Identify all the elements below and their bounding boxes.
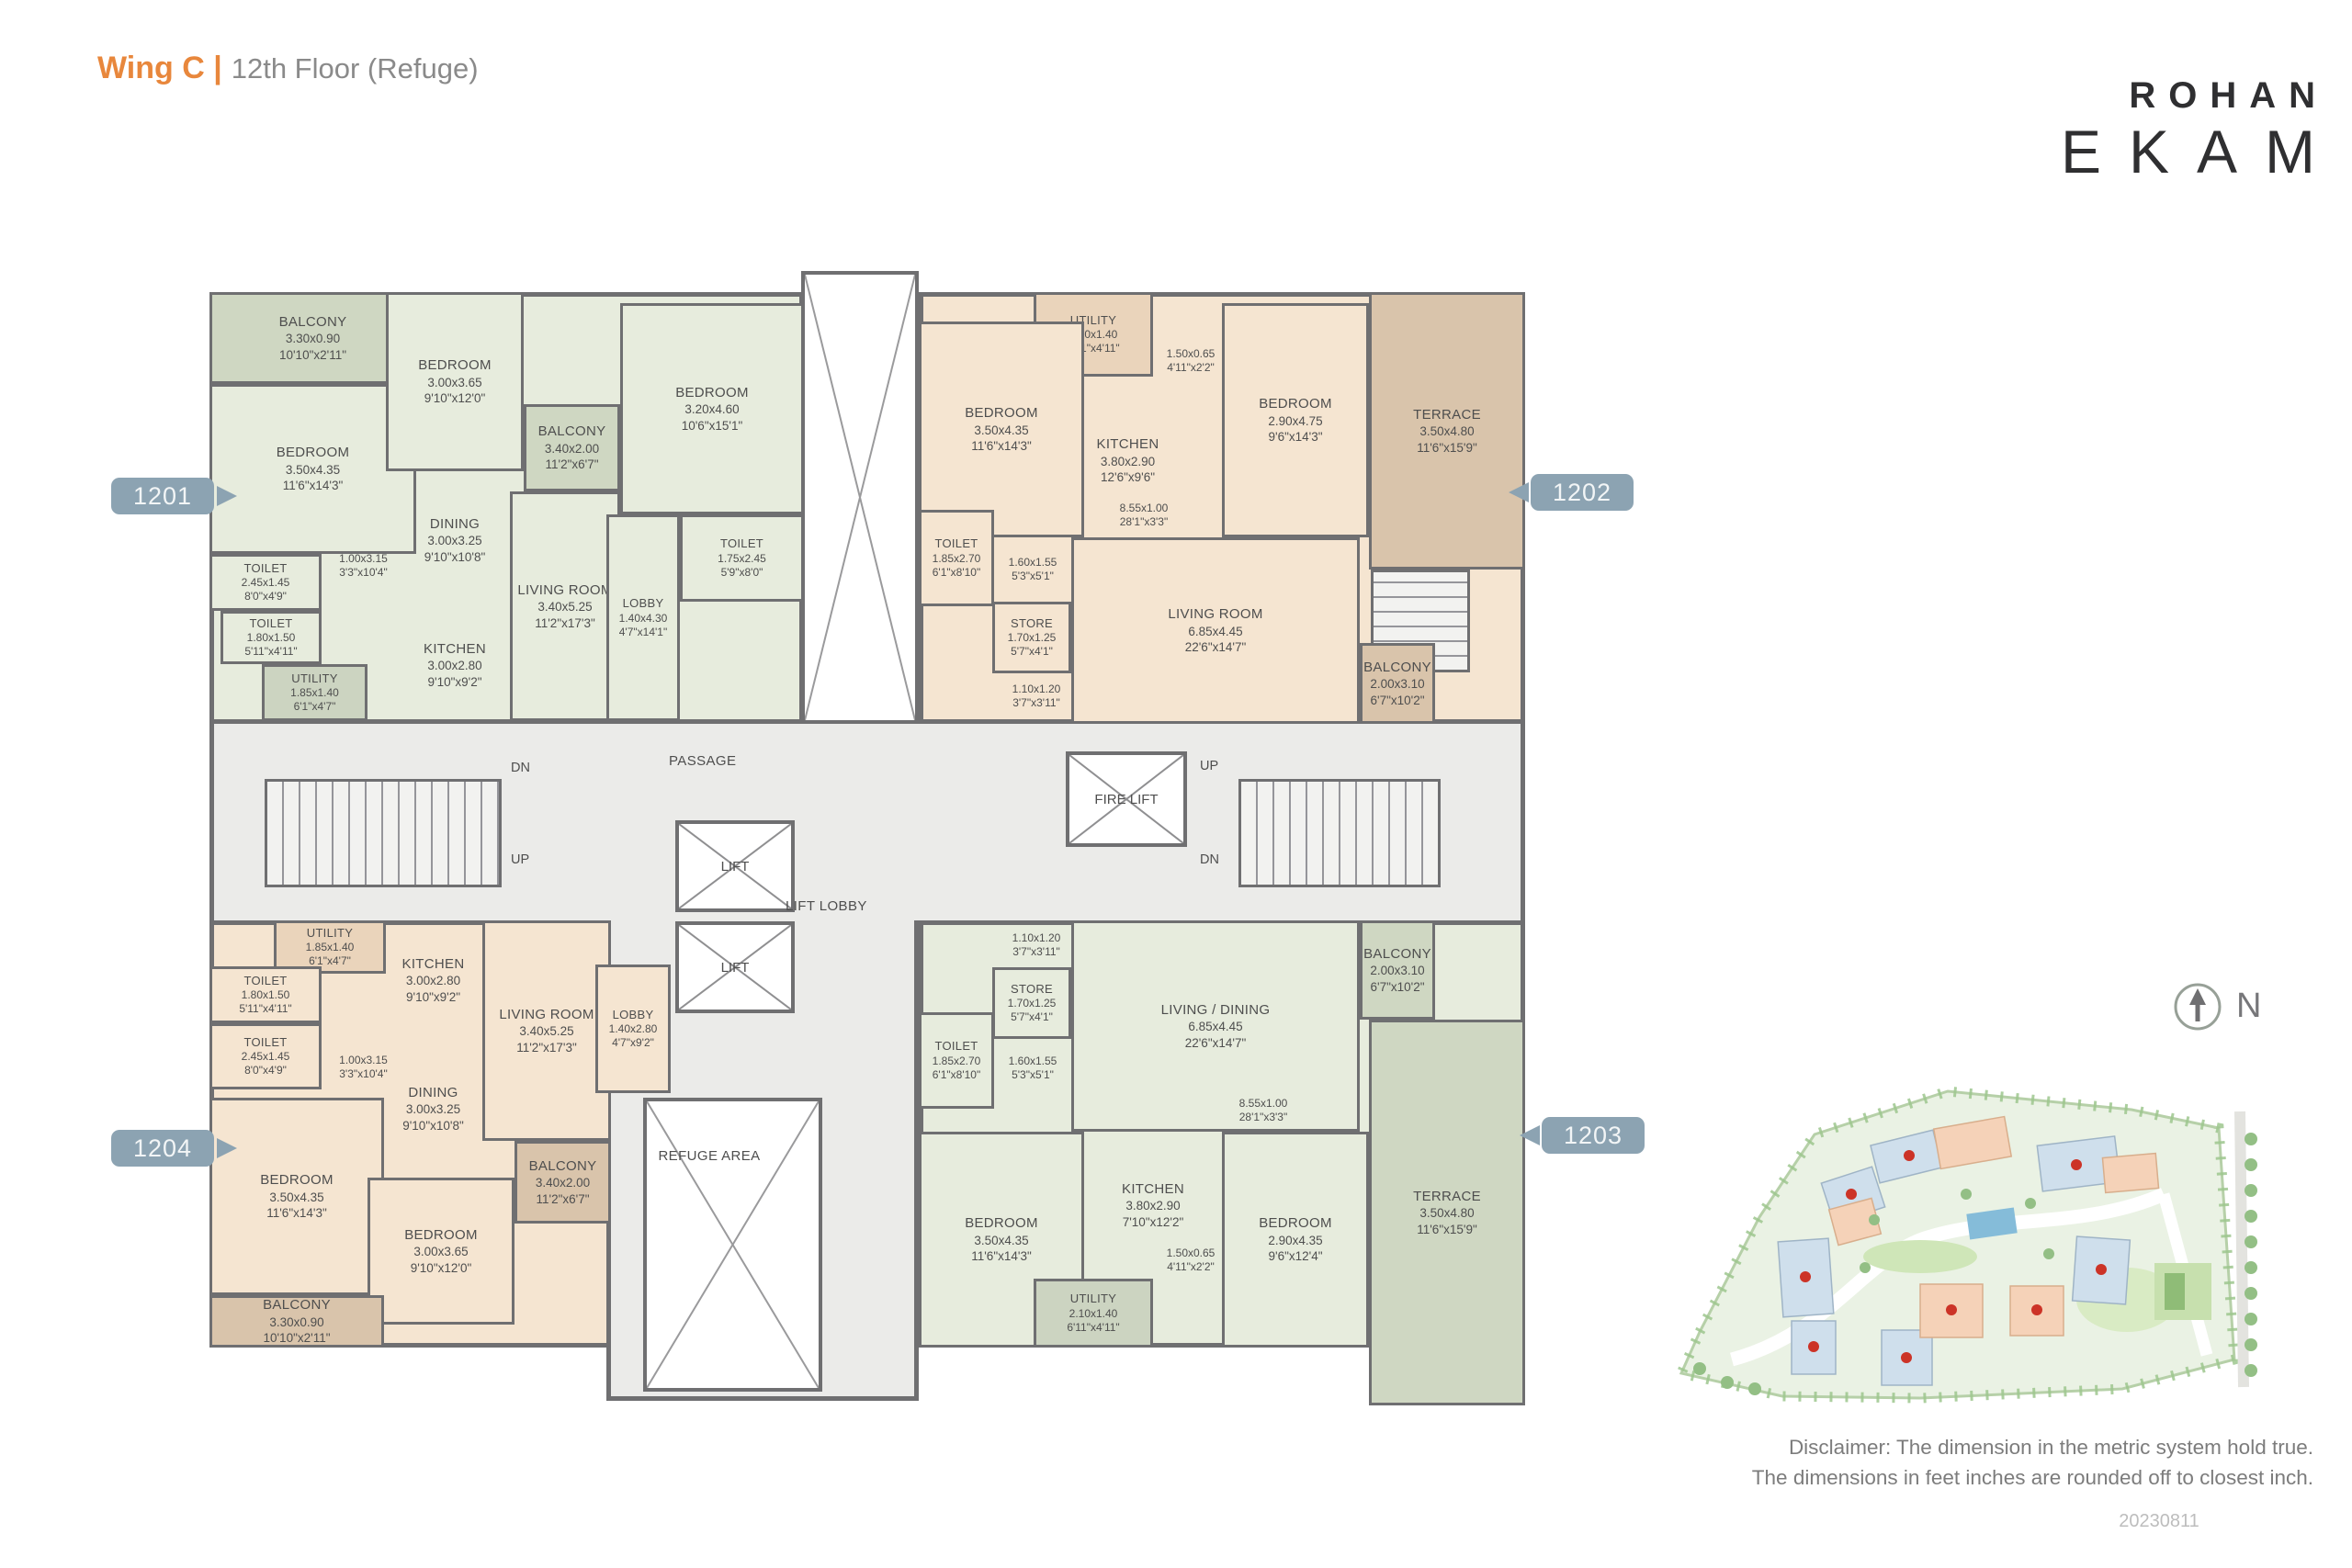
date-code: 20230811 (2095, 1511, 2223, 1532)
room-metric: 3.80x2.90 (1101, 454, 1155, 470)
unit-badge-1203: 1203 (1542, 1117, 1645, 1154)
room-imperial: 5'9"x8'0" (721, 566, 763, 580)
room-metric: 2.90x4.35 (1268, 1233, 1322, 1249)
room-name: UTILITY (291, 671, 338, 687)
room-name: LIVING ROOM (499, 1006, 594, 1024)
dn-label-left: DN (511, 761, 530, 775)
room-toilet: TOILET1.85x2.706'1"x8'10" (919, 1012, 994, 1109)
site-map-illustration (1645, 1056, 2269, 1419)
room-imperial: 22'6"x14'7" (1185, 639, 1247, 656)
room-imperial: 10'6"x15'1" (682, 418, 743, 434)
room-name: TOILET (934, 1039, 978, 1055)
refuge-area-label: REFUGE AREA (654, 1146, 764, 1168)
room-imperial: 11'2"x6'7" (536, 1191, 589, 1208)
room-metric: 1.60x1.55 (1009, 556, 1057, 570)
room-dining: DINING3.00x3.259'10"x10'8" (386, 471, 524, 609)
room-metric: 3.50x4.80 (1419, 1205, 1474, 1222)
room-imperial: 8'0"x4'9" (244, 590, 287, 604)
room-imperial: 3'7"x3'11" (1012, 696, 1060, 710)
room-metric: 1.50x0.65 (1167, 347, 1216, 361)
fire-lift-label: FIRE LIFT (1069, 755, 1183, 843)
room-imperial: 4'7"x9'2" (612, 1036, 654, 1050)
room-niche: 1.60x1.555'3"x5'1" (996, 547, 1069, 592)
fire-lift-shaft: FIRE LIFT (1066, 751, 1187, 847)
room-balcony: BALCONY3.40x2.0011'2"x6'7" (514, 1141, 611, 1224)
room-name: BALCONY (279, 313, 347, 332)
room-metric: 1.85x1.40 (290, 686, 339, 700)
room-imperial: 11'6"x14'3" (283, 478, 344, 494)
room-toilet: TOILET1.75x2.455'9"x8'0" (680, 514, 804, 602)
room-imperial: 11'6"x14'3" (971, 438, 1032, 455)
room-metric: 2.00x3.10 (1370, 963, 1424, 979)
room-name: LIVING ROOM (517, 581, 612, 600)
room-metric: 1.70x1.25 (1008, 631, 1057, 645)
room-terrace: TERRACE3.50x4.8011'6"x15'9" (1369, 1020, 1525, 1405)
room-name: STORE (1011, 982, 1053, 998)
room-name: KITCHEN (424, 640, 486, 659)
room-metric: 1.70x1.25 (1008, 997, 1057, 1010)
room-metric: 3.30x0.90 (269, 1314, 323, 1331)
unit-badge-1201: 1201 (111, 478, 214, 514)
room-bedroom: BEDROOM2.90x4.759'6"x14'3" (1222, 303, 1369, 537)
room-name: BEDROOM (260, 1171, 334, 1190)
room-imperial: 6'7"x10'2" (1370, 693, 1424, 709)
room-imperial: 11'2"x17'3" (516, 1040, 577, 1056)
room-imperial: 4'7"x14'1" (619, 626, 667, 639)
room-metric: 1.80x1.50 (242, 988, 290, 1002)
room-imperial: 28'1"x3'3" (1239, 1111, 1287, 1124)
room-metric: 1.85x2.70 (933, 1055, 981, 1068)
dn-label-right: DN (1200, 852, 1219, 867)
room-metric: 1.50x0.65 (1167, 1247, 1216, 1260)
room-imperial: 5'7"x4'1" (1011, 1010, 1053, 1024)
room-imperial: 3'7"x3'11" (1012, 945, 1060, 959)
room-metric: 3.50x4.35 (286, 462, 340, 479)
lift-label: LIFT (679, 925, 791, 1010)
room-bedroom: BEDROOM3.00x3.659'10"x12'0" (386, 292, 524, 471)
room-toilet: TOILET2.45x1.458'0"x4'9" (209, 1023, 322, 1089)
room-name: BALCONY (529, 1157, 597, 1176)
page-title: Wing C |12th Floor (Refuge) (97, 51, 479, 86)
room-imperial: 5'11"x4'11" (239, 1002, 291, 1016)
room-imperial: 4'11"x2'2" (1167, 1260, 1215, 1274)
room-metric: 2.90x4.75 (1268, 413, 1322, 430)
room-living: LIVING ROOM3.40x5.2511'2"x17'3" (482, 920, 611, 1141)
north-label: N (2236, 987, 2261, 1026)
unit-arrow-1202 (1509, 482, 1529, 502)
lift-lobby-label: LIFT LOBBY (786, 898, 867, 914)
lift-label: LIFT (679, 824, 791, 908)
room-utility: UTILITY1.85x1.406'1"x4'7" (262, 664, 367, 721)
room-dining: DINING3.00x3.259'10"x10'8" (384, 1040, 482, 1178)
room-terrace: TERRACE3.50x4.8011'6"x15'9" (1369, 292, 1525, 570)
room-imperial: 12'6"x9'6" (1101, 469, 1155, 486)
central-duct-bottom (643, 1098, 822, 1392)
room-store: STORE1.70x1.255'7"x4'1" (992, 967, 1071, 1039)
room-metric: 1.10x1.20 (1012, 682, 1061, 696)
room-metric: 6.85x4.45 (1188, 1019, 1242, 1035)
room-metric: 3.50x4.35 (974, 423, 1028, 439)
room-imperial: 5'3"x5'1" (1012, 1068, 1054, 1082)
room-living: LIVING ROOM6.85x4.4522'6"x14'7" (1071, 537, 1360, 724)
room-name: BALCONY (1363, 659, 1431, 677)
room-imperial: 3'3"x10'4" (339, 566, 387, 580)
room-metric: 3.50x4.35 (269, 1190, 323, 1206)
room-name: TOILET (243, 974, 287, 989)
room-name: TOILET (720, 536, 763, 552)
lift-shaft-1: LIFT (675, 820, 795, 912)
room-metric: 1.10x1.20 (1012, 931, 1061, 945)
wing-label: Wing C | (97, 51, 222, 85)
unit-arrow-1203 (1520, 1125, 1540, 1145)
room-metric: 3.50x4.35 (974, 1233, 1028, 1249)
room-niche: 1.60x1.555'3"x5'1" (996, 1045, 1069, 1091)
room-imperial: 11'6"x15'9" (1417, 440, 1477, 457)
room-metric: 1.80x1.50 (247, 631, 296, 645)
room-name: TERRACE (1413, 406, 1481, 424)
room-name: BEDROOM (1259, 395, 1332, 413)
room-name: UTILITY (307, 926, 354, 942)
room-lobby: LOBBY1.40x4.304'7"x14'1" (606, 514, 680, 721)
room-metric: 3.00x3.25 (406, 1101, 460, 1118)
room-toilet: TOILET2.45x1.458'0"x4'9" (209, 554, 322, 611)
room-name: LOBBY (613, 1008, 654, 1023)
unit-badge-1204: 1204 (111, 1130, 214, 1167)
room-metric: 3.80x2.90 (1125, 1198, 1180, 1214)
room-metric: 3.40x2.00 (545, 441, 599, 457)
room-imperial: 6'11"x4'11" (1067, 1321, 1119, 1335)
room-toilet: TOILET1.85x2.706'1"x8'10" (919, 510, 994, 606)
room-imperial: 10'10"x2'11" (263, 1330, 330, 1347)
room-name: TOILET (243, 1035, 287, 1051)
room-metric: 2.10x1.40 (1069, 1307, 1118, 1321)
room-imperial: 9'10"x9'2" (427, 674, 481, 691)
room-imperial: 11'2"x6'7" (545, 457, 598, 473)
room-balcony: BALCONY3.40x2.0011'2"x6'7" (524, 404, 620, 491)
room-imperial: 9'10"x12'0" (411, 1260, 472, 1277)
room-metric: 8.55x1.00 (1120, 502, 1169, 515)
room-toilet: TOILET1.80x1.505'11"x4'11" (209, 966, 322, 1023)
room-toilet: TOILET1.80x1.505'11"x4'11" (220, 611, 322, 664)
room-metric: 3.40x2.00 (536, 1175, 590, 1191)
unit-arrow-1201 (217, 486, 237, 506)
room-imperial: 5'3"x5'1" (1012, 570, 1054, 583)
room-bedroom: BEDROOM3.20x4.6010'6"x15'1" (620, 303, 804, 514)
room-name: KITCHEN (1097, 435, 1159, 454)
room-imperial: 11'2"x17'3" (535, 615, 595, 632)
room-metric: 1.85x2.70 (933, 552, 981, 566)
room-metric: 1.75x2.45 (718, 552, 766, 566)
room-name: BALCONY (538, 423, 606, 441)
room-balcony: BALCONY3.30x0.9010'10"x2'11" (209, 1295, 384, 1348)
disclaimer-line1: Disclaimer: The dimension in the metric … (1746, 1433, 2313, 1463)
room-imperial: 11'6"x14'3" (971, 1248, 1032, 1265)
room-niche: 1.50x0.654'11"x2'2" (1148, 1240, 1233, 1280)
lift-shaft-2: LIFT (675, 921, 795, 1013)
room-name: TERRACE (1413, 1188, 1481, 1206)
room-imperial: 22'6"x14'7" (1185, 1035, 1247, 1052)
disclaimer-line2: The dimensions in feet inches are rounde… (1746, 1463, 2313, 1494)
room-balcony: BALCONY2.00x3.106'7"x10'2" (1360, 920, 1435, 1020)
room-name: TOILET (934, 536, 978, 552)
room-name: DINING (430, 515, 480, 534)
room-imperial: 6'1"x4'7" (294, 700, 336, 714)
room-metric: 3.00x2.80 (406, 973, 460, 989)
room-metric: 2.00x3.10 (1370, 676, 1424, 693)
central-duct-top (801, 271, 919, 724)
up-label-right: UP (1200, 759, 1218, 773)
room-metric: 3.30x0.90 (286, 331, 340, 347)
room-imperial: 10'10"x2'11" (279, 347, 346, 364)
room-niche: 1.50x0.654'11"x2'2" (1148, 340, 1233, 382)
room-name: KITCHEN (1122, 1180, 1184, 1199)
room-imperial: 28'1"x3'3" (1120, 515, 1168, 529)
north-arrow-icon (2172, 981, 2227, 1036)
room-metric: 1.40x2.80 (609, 1022, 658, 1036)
room-name: LIVING / DINING (1161, 1001, 1271, 1020)
room-name: BEDROOM (965, 404, 1038, 423)
room-name: LIVING ROOM (1168, 605, 1262, 624)
room-name: BEDROOM (404, 1226, 478, 1245)
unit-arrow-1204 (217, 1138, 237, 1158)
room-living: LIVING ROOM3.40x5.2511'2"x17'3" (510, 491, 620, 721)
room-imperial: 7'10"x12'2" (1123, 1214, 1184, 1231)
room-imperial: 6'1"x8'10" (933, 1068, 980, 1082)
room-imperial: 3'3"x10'4" (339, 1067, 387, 1081)
room-name: TOILET (249, 616, 292, 632)
room-metric: 3.40x5.25 (537, 599, 592, 615)
room-name: BEDROOM (965, 1214, 1038, 1233)
room-balcony: BALCONY2.00x3.106'7"x10'2" (1360, 643, 1435, 724)
room-bedroom: BEDROOM3.50x4.3511'6"x14'3" (209, 1098, 384, 1295)
room-metric: 3.00x3.65 (427, 375, 481, 391)
room-imperial: 9'10"x12'0" (424, 390, 486, 407)
room-imperial: 9'10"x9'2" (406, 989, 460, 1006)
room-metric: 1.00x3.15 (339, 552, 388, 566)
room-imperial: 11'6"x15'9" (1417, 1222, 1477, 1238)
room-imperial: 9'6"x12'4" (1268, 1248, 1322, 1265)
room-imperial: 9'10"x10'8" (402, 1118, 464, 1134)
room-kitchen: KITCHEN3.00x2.809'10"x9'2" (384, 920, 482, 1040)
up-label-left: UP (511, 852, 529, 867)
floor-label: 12th Floor (Refuge) (232, 52, 479, 85)
room-passage-strip: 8.55x1.0028'1"x3'3" (1084, 496, 1204, 535)
floor-plan-page: Wing C |12th Floor (Refuge) ROHAN EKAM L… (0, 0, 2352, 1568)
brand-logo: ROHAN EKAM (1957, 75, 2315, 186)
room-bedroom: BEDROOM3.00x3.659'10"x12'0" (367, 1178, 514, 1325)
room-bedroom: BEDROOM2.90x4.359'6"x12'4" (1222, 1132, 1369, 1348)
room-name: DINING (408, 1084, 458, 1102)
room-imperial: 9'10"x10'8" (424, 549, 486, 566)
brand-name-top: ROHAN (1957, 75, 2328, 117)
passage-label: PASSAGE (669, 753, 736, 769)
room-imperial: 8'0"x4'9" (244, 1064, 287, 1077)
room-imperial: 11'6"x14'3" (266, 1205, 327, 1222)
north-compass: N (2172, 981, 2301, 1036)
room-metric: 2.45x1.45 (242, 1050, 290, 1064)
room-name: UTILITY (1070, 1292, 1117, 1307)
room-metric: 2.45x1.45 (242, 576, 290, 590)
room-utility: UTILITY2.10x1.406'11"x4'11" (1034, 1279, 1153, 1348)
room-metric: 3.00x3.65 (413, 1244, 468, 1260)
room-passage-strip: 8.55x1.0028'1"x3'3" (1204, 1091, 1323, 1130)
room-imperial: 4'11"x2'2" (1167, 361, 1215, 375)
room-imperial: 9'6"x14'3" (1268, 429, 1322, 446)
room-metric: 3.40x5.25 (519, 1023, 573, 1040)
disclaimer: Disclaimer: The dimension in the metric … (1746, 1433, 2313, 1493)
stairs-left (265, 779, 502, 887)
brand-name-bottom: EKAM (1957, 117, 2343, 186)
room-name: KITCHEN (402, 955, 465, 974)
room-name: BALCONY (1363, 945, 1431, 964)
room-name: BALCONY (263, 1296, 331, 1314)
room-metric: 1.00x3.15 (339, 1054, 388, 1067)
room-name: STORE (1011, 616, 1053, 632)
room-imperial: 6'1"x8'10" (933, 566, 980, 580)
room-imperial: 5'11"x4'11" (244, 645, 297, 659)
room-store: STORE1.70x1.255'7"x4'1" (992, 602, 1071, 673)
room-imperial: 5'7"x4'1" (1011, 645, 1053, 659)
room-kitchen: KITCHEN3.00x2.809'10"x9'2" (386, 609, 524, 721)
room-imperial: 6'7"x10'2" (1370, 979, 1424, 996)
room-niche: 1.10x1.203'7"x3'11" (997, 924, 1076, 965)
room-metric: 1.40x4.30 (619, 612, 668, 626)
room-lobby: LOBBY1.40x2.804'7"x9'2" (595, 964, 671, 1093)
room-name: BEDROOM (1259, 1214, 1332, 1233)
room-metric: 3.00x3.25 (427, 533, 481, 549)
room-metric: 6.85x4.45 (1188, 624, 1242, 640)
room-metric: 8.55x1.00 (1239, 1097, 1288, 1111)
room-name: LOBBY (623, 596, 664, 612)
room-niche: 1.10x1.203'7"x3'11" (997, 675, 1076, 716)
room-metric: 1.60x1.55 (1009, 1055, 1057, 1068)
room-metric: 1.85x1.40 (306, 941, 355, 954)
room-name: BEDROOM (277, 444, 350, 462)
unit-badge-1202: 1202 (1531, 474, 1634, 511)
room-metric: 3.20x4.60 (684, 401, 739, 418)
room-name: TOILET (243, 561, 287, 577)
room-metric: 3.50x4.80 (1419, 423, 1474, 440)
stairs-right (1238, 779, 1441, 887)
room-name: BEDROOM (418, 356, 492, 375)
room-name: BEDROOM (675, 384, 749, 402)
room-metric: 3.00x2.80 (427, 658, 481, 674)
